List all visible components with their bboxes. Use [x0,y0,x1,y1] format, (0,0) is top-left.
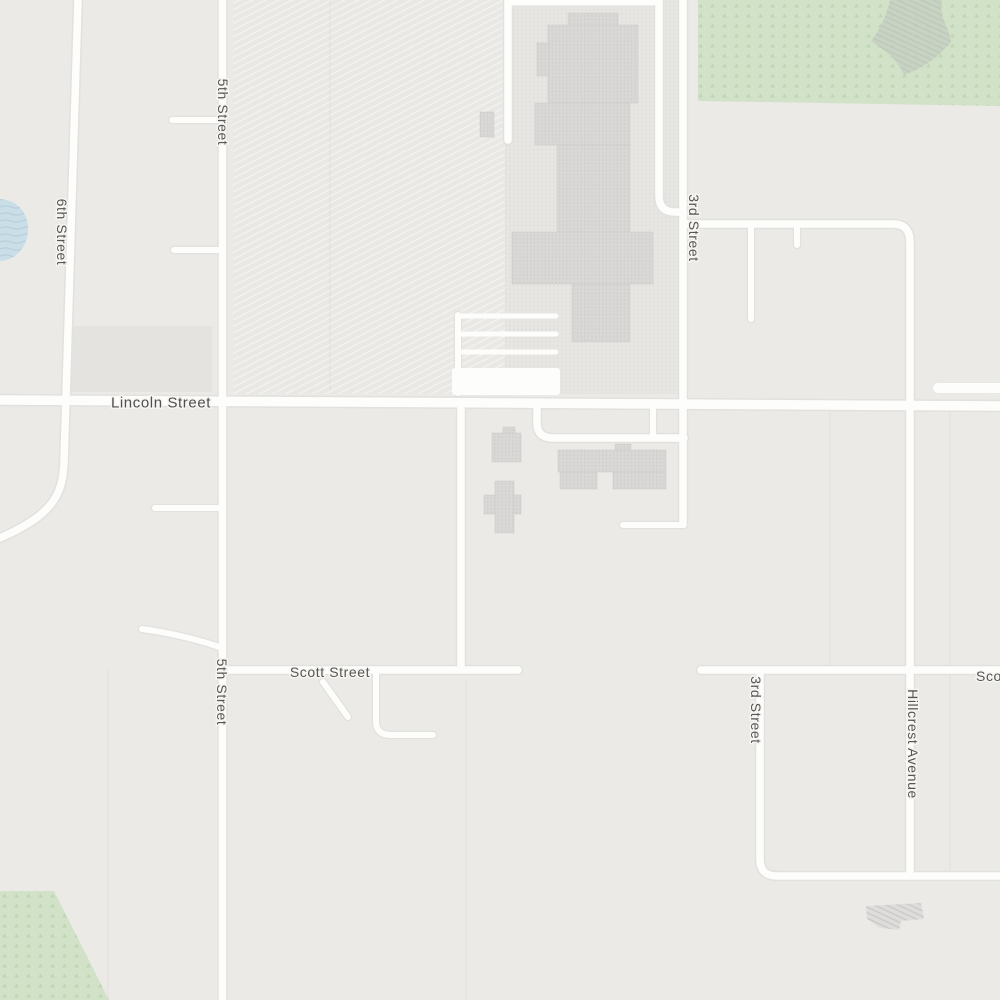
parking-lot-apron [452,368,560,395]
map-svg[interactable]: Lincoln Street Scott Street Scott Street… [0,0,1000,1000]
street-label-lincoln: Lincoln Street [111,395,211,412]
small-building [480,112,494,137]
street-label-scott-clipped: Scott Street [976,668,1000,684]
street-label-5th-upper: 5th Street [215,79,231,146]
street-label-3rd-lower: 3rd Street [748,676,764,743]
street-label-scott: Scott Street [290,664,370,680]
street-label-6th: 6th Street [54,199,70,266]
street-label-5th-lower: 5th Street [214,659,230,726]
street-label-hillcrest: Hillcrest Avenue [905,689,921,799]
map-canvas[interactable]: Lincoln Street Scott Street Scott Street… [0,0,1000,1000]
street-label-3rd-upper: 3rd Street [686,194,702,261]
park-top-right [698,0,1000,106]
